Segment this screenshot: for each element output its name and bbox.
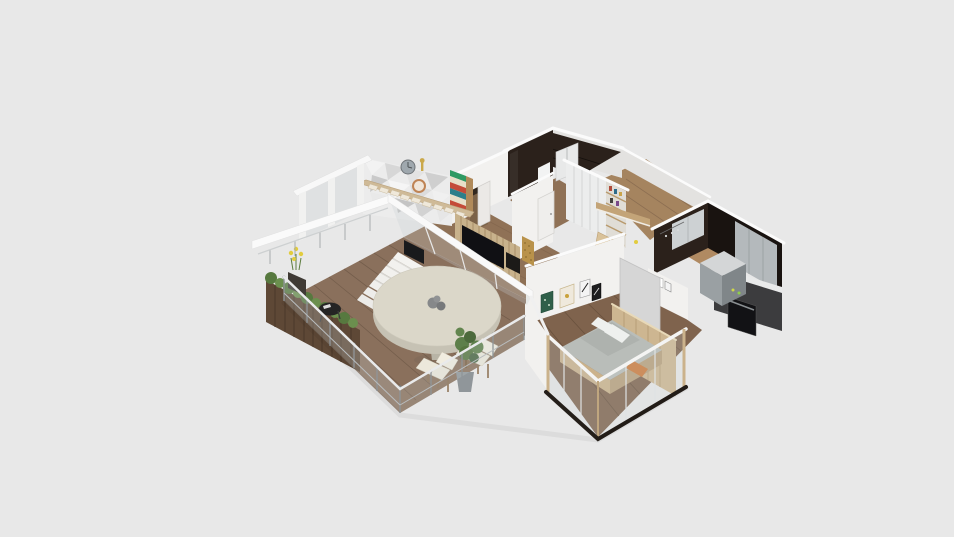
floorplan-3d-render[interactable] xyxy=(0,0,954,537)
key-decor-head xyxy=(420,158,425,163)
white-door xyxy=(538,191,554,241)
frame-detail-2 xyxy=(548,304,550,306)
picture-frame-green xyxy=(541,291,553,313)
wall-clock-copper xyxy=(413,180,425,192)
west-wall-column-1 xyxy=(299,191,306,241)
condiment-1 xyxy=(732,289,735,292)
floor-item-yellow xyxy=(634,240,638,244)
frame-detail xyxy=(544,299,546,301)
key-decor xyxy=(421,162,423,171)
door-knob xyxy=(550,213,552,215)
frame-gold-medallion xyxy=(565,294,569,298)
condiment-2 xyxy=(738,292,741,295)
door-leaf xyxy=(478,181,490,227)
render-viewport xyxy=(0,0,954,537)
picture-frame-white xyxy=(580,279,590,298)
